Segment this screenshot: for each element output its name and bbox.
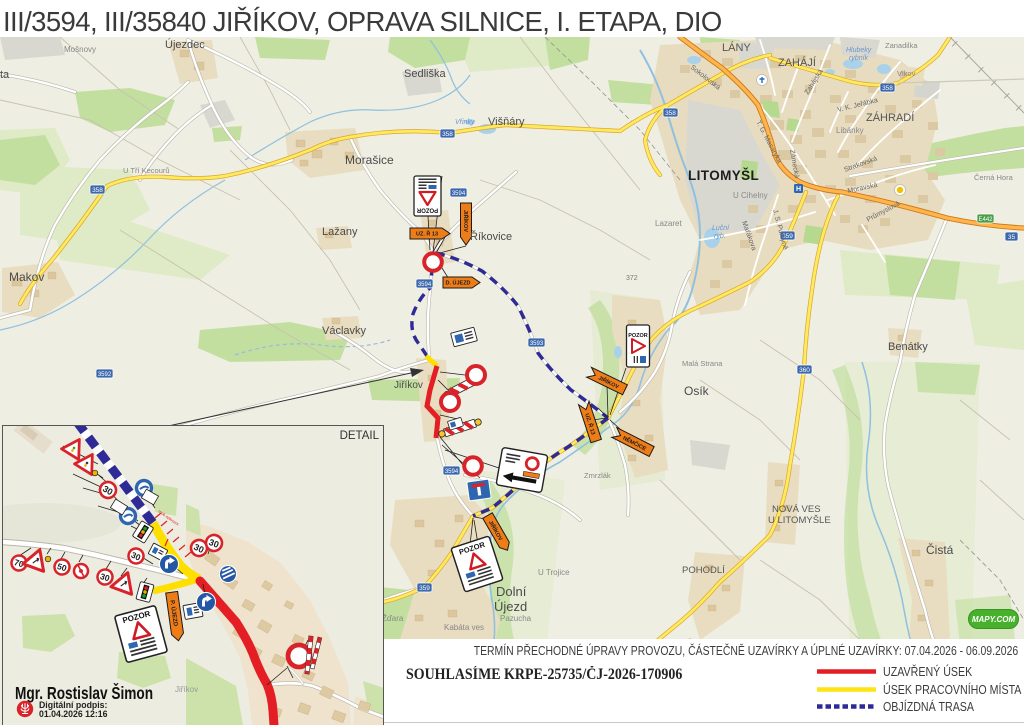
svg-text:Říkovice: Říkovice: [470, 230, 512, 243]
svg-text:U Trojice: U Trojice: [538, 568, 570, 577]
svg-text:LÁNY: LÁNY: [722, 41, 751, 54]
svg-text:3594: 3594: [418, 282, 432, 288]
svg-text:3594: 3594: [445, 469, 459, 475]
svg-text:Vlkov: Vlkov: [897, 69, 916, 78]
svg-text:Hlubeky: Hlubeky: [846, 47, 872, 54]
svg-text:359: 359: [419, 585, 430, 592]
svg-text:Václavky: Václavky: [322, 325, 367, 337]
svg-text:3593: 3593: [530, 341, 544, 347]
svg-text:JIŘÍKOV: JIŘÍKOV: [462, 210, 470, 232]
svg-text:Vřinky: Vřinky: [455, 119, 475, 126]
svg-text:ZÁHRADÍ: ZÁHRADÍ: [866, 111, 915, 124]
svg-text:U Cihelny: U Cihelny: [733, 191, 768, 200]
svg-text:Dolní: Dolní: [496, 584, 527, 599]
svg-text:Jiříkov: Jiříkov: [175, 685, 198, 694]
svg-text:35: 35: [1008, 234, 1016, 241]
svg-text:Újezdec: Újezdec: [165, 38, 205, 51]
svg-text:Luční: Luční: [712, 225, 730, 232]
svg-text:3594: 3594: [452, 191, 466, 197]
svg-text:UZ. Ř 13: UZ. Ř 13: [416, 230, 438, 238]
svg-text:Osík: Osík: [684, 384, 710, 398]
svg-text:Sedliška: Sedliška: [404, 68, 446, 80]
svg-text:D. ÚJEZD: D. ÚJEZD: [445, 280, 470, 287]
svg-text:POZOR: POZOR: [628, 333, 648, 339]
svg-text:Benátky: Benátky: [888, 341, 928, 353]
svg-text:Libánky: Libánky: [836, 126, 864, 135]
svg-text:Lazaret: Lazaret: [655, 219, 682, 228]
svg-text:ta: ta: [0, 69, 10, 81]
svg-text:rybník: rybník: [849, 55, 869, 62]
svg-text:Čistá: Čistá: [926, 542, 954, 557]
svg-text:358: 358: [442, 131, 453, 138]
svg-text:E442: E442: [978, 217, 993, 223]
svg-text:3592: 3592: [98, 372, 112, 378]
svg-text:LITOMYŠL: LITOMYŠL: [688, 168, 759, 183]
svg-text:Malá Strana: Malá Strana: [682, 359, 723, 368]
svg-text:ZAHÁJÍ: ZAHÁJÍ: [778, 56, 817, 69]
svg-text:Újezd: Újezd: [494, 599, 527, 614]
svg-text:358: 358: [665, 110, 676, 117]
svg-text:U Tří Kecourů: U Tří Kecourů: [123, 166, 170, 175]
svg-text:Lažany: Lažany: [322, 226, 358, 238]
svg-text:Žďara: Žďara: [382, 614, 404, 623]
svg-text:POZOR: POZOR: [416, 207, 438, 213]
svg-text:Morašice: Morašice: [345, 153, 394, 167]
svg-text:358: 358: [882, 85, 893, 92]
svg-text:Kabáta ves: Kabáta ves: [444, 623, 484, 632]
svg-text:U LITOMYŠLE: U LITOMYŠLE: [768, 515, 831, 526]
svg-text:H: H: [796, 186, 801, 193]
svg-text:Višňáry: Višňáry: [488, 116, 525, 128]
svg-text:Mošnovy: Mošnovy: [64, 45, 96, 54]
svg-text:360: 360: [799, 367, 810, 374]
svg-text:358: 358: [92, 187, 103, 194]
svg-text:Pazucha: Pazucha: [500, 614, 532, 623]
svg-text:Zmrzlák: Zmrzlák: [584, 471, 611, 480]
svg-text:Zanadilka: Zanadilka: [885, 41, 918, 50]
svg-text:NOVÁ VES: NOVÁ VES: [772, 504, 821, 515]
svg-text:372: 372: [626, 275, 638, 282]
svg-text:DETAIL: DETAIL: [340, 430, 380, 442]
svg-text:Jiříkov: Jiříkov: [394, 380, 423, 391]
svg-text:Černá Hora: Černá Hora: [974, 173, 1014, 182]
svg-text:ryb.: ryb.: [714, 233, 726, 240]
svg-text:Makov: Makov: [9, 270, 44, 284]
svg-text:POHODLÍ: POHODLÍ: [682, 565, 725, 576]
